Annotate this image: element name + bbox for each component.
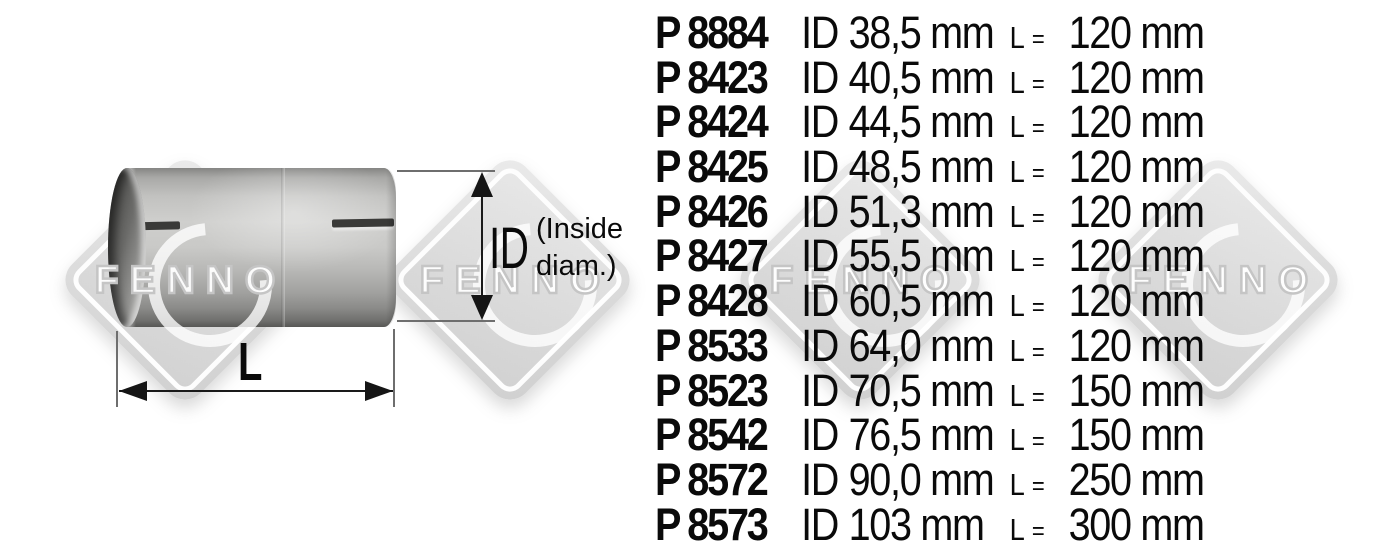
inner-diameter: ID76,5 mm: [801, 413, 1010, 458]
length-prefix: L=: [1010, 150, 1069, 201]
part-number: P 8424: [655, 100, 801, 145]
inner-diameter: ID60,5 mm: [801, 279, 1010, 324]
id-prefix: ID: [801, 499, 838, 550]
inner-diameter: ID103 mm: [801, 503, 1010, 548]
length-value: 150 mm: [1069, 369, 1204, 414]
id-value: 40,5 mm: [849, 52, 994, 103]
id-prefix: ID: [801, 96, 838, 147]
part-number: P 8572: [655, 458, 801, 503]
part-number: P 8423: [655, 56, 801, 101]
length-symbol: L: [1010, 378, 1025, 413]
id-note-line2: diam.): [536, 248, 623, 285]
length-symbol: L: [1010, 109, 1025, 144]
length-prefix: L=: [1010, 374, 1069, 425]
length-symbol: L: [1010, 20, 1025, 55]
table-row: P 8542 ID76,5 mm L= 150 mm: [655, 413, 1204, 458]
length-value: 120 mm: [1069, 190, 1204, 235]
equals-sign: =: [1032, 248, 1045, 276]
id-extension-line-bottom: [397, 320, 495, 322]
length-value: 120 mm: [1069, 100, 1204, 145]
equals-sign: =: [1032, 25, 1045, 53]
length-prefix: L=: [1010, 195, 1069, 246]
length-symbol: L: [1010, 243, 1025, 278]
length-prefix: L=: [1010, 61, 1069, 112]
equals-sign: =: [1032, 204, 1045, 232]
length-symbol: L: [1010, 199, 1025, 234]
table-row: P 8572 ID90,0 mm L= 250 mm: [655, 458, 1204, 503]
part-number: P 8573: [655, 503, 801, 548]
id-arrow-down-icon: [471, 295, 493, 320]
part-number: P 8428: [655, 279, 801, 324]
length-prefix: L=: [1010, 239, 1069, 290]
id-value: 103 mm: [849, 499, 984, 550]
part-number: P 8523: [655, 369, 801, 414]
table-row: P 8523 ID70,5 mm L= 150 mm: [655, 369, 1204, 414]
id-prefix: ID: [801, 230, 838, 281]
equals-sign: =: [1032, 472, 1045, 500]
id-value: 70,5 mm: [849, 365, 994, 416]
part-number: P 8542: [655, 413, 801, 458]
inner-diameter: ID48,5 mm: [801, 145, 1010, 190]
length-extension-line-right: [393, 329, 395, 407]
id-prefix: ID: [801, 186, 838, 237]
length-prefix: L=: [1010, 105, 1069, 156]
length-value: 120 mm: [1069, 145, 1204, 190]
id-prefix: ID: [801, 320, 838, 371]
table-row: P 8426 ID51,3 mm L= 120 mm: [655, 190, 1204, 235]
id-value: 55,5 mm: [849, 230, 994, 281]
length-value: 120 mm: [1069, 11, 1204, 56]
length-symbol: L: [1010, 333, 1025, 368]
id-value: 90,0 mm: [849, 454, 994, 505]
inner-diameter: ID55,5 mm: [801, 234, 1010, 279]
equals-sign: =: [1032, 383, 1045, 411]
id-value: 64,0 mm: [849, 320, 994, 371]
table-row: P 8533 ID64,0 mm L= 120 mm: [655, 324, 1204, 369]
equals-sign: =: [1032, 114, 1045, 142]
length-symbol: L: [1010, 422, 1025, 457]
part-number: P 8427: [655, 234, 801, 279]
id-prefix: ID: [801, 141, 838, 192]
length-prefix: L=: [1010, 16, 1069, 67]
equals-sign: =: [1032, 338, 1045, 366]
id-value: 38,5 mm: [849, 7, 994, 58]
length-arrow-right-icon: [365, 381, 393, 401]
length-value: 120 mm: [1069, 279, 1204, 324]
id-value: 51,3 mm: [849, 186, 994, 237]
parts-list: P 8884 ID38,5 mm L= 120 mm P 8423 ID40,5…: [655, 11, 1204, 547]
id-value: 60,5 mm: [849, 275, 994, 326]
id-arrow-up-icon: [471, 172, 493, 197]
inner-diameter: ID90,0 mm: [801, 458, 1010, 503]
table-row: P 8427 ID55,5 mm L= 120 mm: [655, 234, 1204, 279]
length-symbol: L: [1010, 154, 1025, 189]
length-symbol: L: [1010, 288, 1025, 323]
length-value: 120 mm: [1069, 234, 1204, 279]
id-note-line1: (Inside: [536, 211, 623, 248]
id-prefix: ID: [801, 454, 838, 505]
inner-diameter: ID38,5 mm: [801, 11, 1010, 56]
part-number: P 8426: [655, 190, 801, 235]
length-symbol: L: [1010, 512, 1025, 547]
length-symbol: L: [1010, 65, 1025, 100]
equals-sign: =: [1032, 159, 1045, 187]
length-symbol: L: [1010, 467, 1025, 502]
length-prefix: L=: [1010, 463, 1069, 514]
id-value: 76,5 mm: [849, 409, 994, 460]
table-row: P 8573 ID103 mm L= 300 mm: [655, 503, 1204, 548]
length-dimension-label: L: [238, 335, 262, 389]
length-prefix: L=: [1010, 329, 1069, 380]
inner-diameter: ID44,5 mm: [801, 100, 1010, 145]
inner-diameter: ID51,3 mm: [801, 190, 1010, 235]
part-number: P 8533: [655, 324, 801, 369]
id-value: 48,5 mm: [849, 141, 994, 192]
table-row: P 8428 ID60,5 mm L= 120 mm: [655, 279, 1204, 324]
length-prefix: L=: [1010, 508, 1069, 559]
id-prefix: ID: [801, 365, 838, 416]
length-value: 250 mm: [1069, 458, 1204, 503]
table-row: P 8884 ID38,5 mm L= 120 mm: [655, 11, 1204, 56]
part-number: P 8425: [655, 145, 801, 190]
id-prefix: ID: [801, 7, 838, 58]
length-prefix: L=: [1010, 418, 1069, 469]
equals-sign: =: [1032, 70, 1045, 98]
length-arrow-left-icon: [119, 381, 147, 401]
table-row: P 8425 ID48,5 mm L= 120 mm: [655, 145, 1204, 190]
inner-diameter: ID40,5 mm: [801, 56, 1010, 101]
id-dimension-label: ID: [489, 220, 528, 278]
table-row: P 8424 ID44,5 mm L= 120 mm: [655, 100, 1204, 145]
length-value: 150 mm: [1069, 413, 1204, 458]
equals-sign: =: [1032, 427, 1045, 455]
part-number: P 8884: [655, 11, 801, 56]
equals-sign: =: [1032, 517, 1045, 545]
id-value: 44,5 mm: [849, 96, 994, 147]
equals-sign: =: [1032, 293, 1045, 321]
length-value: 300 mm: [1069, 503, 1204, 548]
catalog-page: FENNO FENNO FENNO FENNO ID (Inside diam.…: [0, 0, 1400, 560]
length-value: 120 mm: [1069, 56, 1204, 101]
length-prefix: L=: [1010, 284, 1069, 335]
length-extension-line-left: [116, 331, 118, 407]
id-prefix: ID: [801, 52, 838, 103]
id-prefix: ID: [801, 275, 838, 326]
table-row: P 8423 ID40,5 mm L= 120 mm: [655, 56, 1204, 101]
length-value: 120 mm: [1069, 324, 1204, 369]
inner-diameter: ID70,5 mm: [801, 369, 1010, 414]
inner-diameter: ID64,0 mm: [801, 324, 1010, 369]
id-prefix: ID: [801, 409, 838, 460]
id-dimension-note: (Inside diam.): [536, 211, 623, 285]
